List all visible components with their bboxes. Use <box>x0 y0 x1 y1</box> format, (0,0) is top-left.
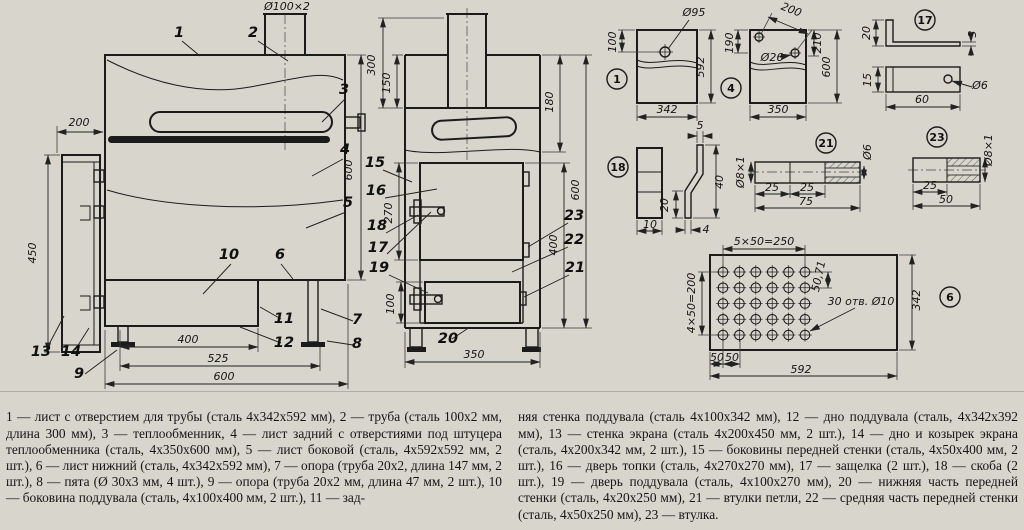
dim-label: 400 <box>547 235 560 256</box>
dim-label: 400 <box>178 333 199 346</box>
hole-grid <box>716 265 812 342</box>
callout-number: 16 <box>366 183 386 199</box>
part-number: 6 <box>946 291 954 304</box>
callout-number: 2 <box>248 25 258 41</box>
dim-label: Ø6 <box>971 79 988 92</box>
dim-label: 525 <box>208 352 229 365</box>
dim-label: 350 <box>768 103 789 116</box>
dim-label: Ø95 <box>682 6 706 19</box>
callout-number: 19 <box>369 260 389 276</box>
callout-number: 23 <box>564 208 584 224</box>
dim-label: 450 <box>26 243 39 264</box>
callout-number: 14 <box>61 344 81 360</box>
dim-label: 600 <box>342 160 355 181</box>
dim-label: 5 <box>697 119 704 132</box>
dim-label: 200 <box>779 0 803 20</box>
part-number: 17 <box>917 14 932 27</box>
dim-label: 592 <box>791 363 812 376</box>
callout-number: 7 <box>352 312 363 328</box>
dim-label: 75 <box>799 195 813 208</box>
dim-label: 350 <box>464 348 485 361</box>
dim-label: 300 <box>365 55 378 76</box>
dim-label: 25 <box>765 181 779 194</box>
callout-number: 21 <box>565 260 585 276</box>
dim-label: 4×50=200 <box>685 273 698 333</box>
dim-label: 100 <box>384 294 397 315</box>
dim-label: 20 <box>658 198 671 212</box>
dim-label: Ø26 <box>760 51 784 64</box>
legend: 1 — лист с отверстием для трубы (сталь 4… <box>0 391 1024 530</box>
dim-label: 180 <box>543 92 556 113</box>
front-view <box>378 8 592 368</box>
callout-number: 22 <box>564 232 584 248</box>
callout-number: 15 <box>365 155 385 171</box>
callout-number: 11 <box>274 311 294 327</box>
dim-label: 40 <box>713 175 726 189</box>
dim-label: 100 <box>606 32 619 53</box>
dim-label: 592 <box>694 57 707 78</box>
callout-number: 6 <box>275 247 285 263</box>
part-number: 1 <box>613 73 621 86</box>
callout-number: 12 <box>274 335 294 351</box>
callout-number: 4 <box>339 142 350 158</box>
dim-label: 15 <box>861 73 874 87</box>
dim-label: 210 <box>811 33 824 54</box>
callout-number: 3 <box>339 82 349 98</box>
dim-label: 25 <box>923 179 937 192</box>
dim-label: 342 <box>657 103 678 116</box>
callout-number: 20 <box>438 331 458 347</box>
part-number: 21 <box>818 137 833 150</box>
dim-label: 20 <box>860 26 873 40</box>
callout-number: 5 <box>343 195 353 211</box>
dim-label: 4 <box>703 223 710 236</box>
callout-number: 13 <box>31 344 51 360</box>
dim-label: 10 <box>643 218 657 231</box>
part-number: 4 <box>727 82 735 95</box>
dim-label: 30 отв. Ø10 <box>828 295 895 308</box>
technical-drawing: Ø100×22004506004005256003001502701001804… <box>0 0 1024 392</box>
dim-label: 600 <box>214 370 235 383</box>
dim-label: 5×50=250 <box>734 235 794 248</box>
dim-label: 60 <box>915 93 929 106</box>
dim-label: Ø8×1 <box>982 134 995 167</box>
callout-number: 1 <box>174 25 184 41</box>
dim-label: 50 <box>939 193 953 206</box>
stove-blueprint-page: Ø100×22004506004005256003001502701001804… <box>0 0 1024 530</box>
dim-label: 190 <box>723 33 736 54</box>
dim-label: Ø6 <box>861 144 874 161</box>
part-number: 23 <box>929 131 944 144</box>
dim-label: Ø100×2 <box>263 0 310 13</box>
callout-number: 17 <box>368 240 389 256</box>
callout-number: 10 <box>219 247 239 263</box>
part-number: 18 <box>610 161 625 174</box>
legend-column-2: няя стенка поддувала (сталь 4х100х342 мм… <box>518 409 1018 522</box>
dim-label: 50 <box>725 351 739 364</box>
dim-label: 3 <box>966 31 979 38</box>
legend-column-1: 1 — лист с отверстием для трубы (сталь 4… <box>6 409 502 506</box>
dim-label: Ø8×1 <box>734 156 747 189</box>
dim-label: 150 <box>380 73 393 94</box>
side-view <box>44 14 366 389</box>
dim-label: 342 <box>910 290 923 311</box>
callout-number: 9 <box>74 366 84 382</box>
dim-label: 600 <box>820 57 833 78</box>
callout-number: 18 <box>367 218 387 234</box>
dim-label: 25 <box>800 181 814 194</box>
dim-label: 600 <box>569 180 582 201</box>
dim-label: 200 <box>69 116 90 129</box>
callout-number: 8 <box>352 336 362 352</box>
dim-label: 50 <box>710 351 724 364</box>
